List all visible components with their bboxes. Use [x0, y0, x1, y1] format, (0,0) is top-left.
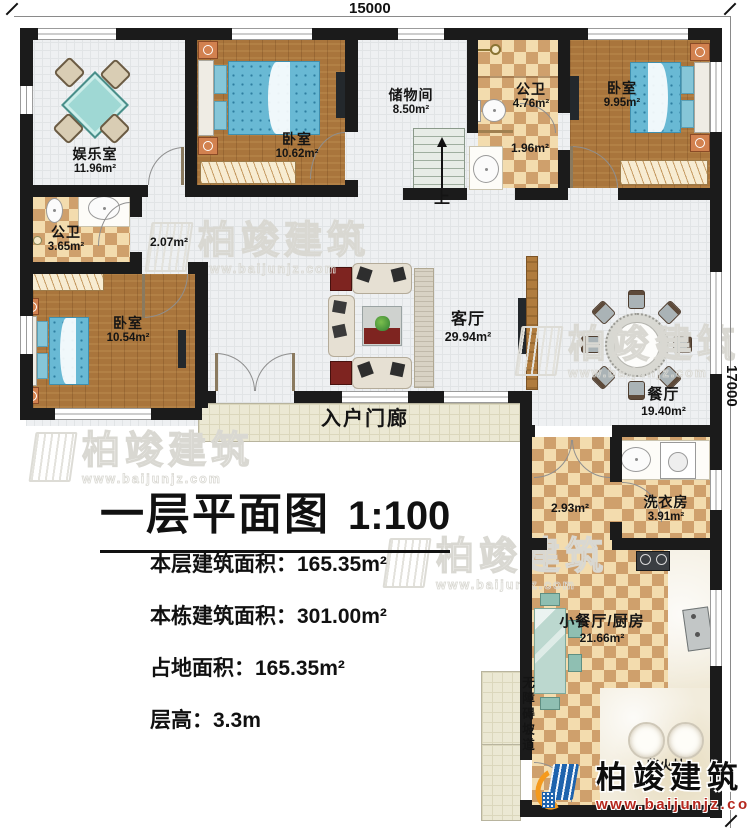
room-area: 3.91m² — [626, 511, 706, 525]
page-title: 一层平面图 — [100, 478, 330, 542]
room-area: 29.94m² — [418, 330, 518, 345]
brand-name: 柏竣建筑 — [596, 762, 750, 793]
room-name: 公卫 — [30, 224, 102, 241]
door-leaf — [570, 146, 573, 188]
wall — [195, 262, 208, 408]
wall — [345, 180, 358, 197]
room-name: 洗衣房 — [626, 494, 706, 511]
room-name: 公卫 — [492, 81, 570, 98]
bed-pillow — [214, 101, 227, 130]
room-name: 储物间 — [366, 87, 456, 104]
window — [710, 62, 722, 132]
sink — [621, 447, 651, 472]
room-label-entertainment: 娱乐室 11.96m² — [45, 146, 145, 176]
brand-url: www.baijunjz.com — [596, 796, 750, 813]
nightstand — [198, 137, 218, 155]
door-leaf — [292, 353, 295, 391]
side-table — [330, 267, 352, 291]
tv-cabinet — [526, 256, 538, 390]
window — [588, 28, 688, 40]
wall — [345, 28, 358, 132]
room-label-bedroom2: 卧室 9.95m² — [572, 80, 672, 110]
room-name: 餐厅 — [616, 386, 711, 404]
stats-block: 本层建筑面积：165.35m² 本栋建筑面积：301.00m² 占地面积：165… — [150, 548, 387, 734]
floor-plan: 15000 17000 无障碍坡道 — [0, 0, 750, 832]
title-block: 一层平面图 1:100 — [100, 478, 450, 553]
wall — [618, 188, 710, 200]
brand-logo: 柏竣建筑 www.baijunjz.com — [536, 760, 750, 814]
dimension-right-label: 17000 — [723, 365, 740, 407]
dining-chair — [628, 290, 645, 309]
stat-building-area: 本栋建筑面积：301.00m² — [150, 600, 387, 630]
room-label-laundry: 洗衣房 3.91m² — [626, 494, 706, 524]
kitchen-chair — [568, 654, 582, 672]
stove-burner — [656, 554, 667, 565]
washing-machine-door — [668, 452, 688, 472]
stat-floor-area: 本层建筑面积：165.35m² — [150, 548, 387, 578]
tv — [336, 72, 345, 118]
wall — [130, 252, 142, 262]
tv — [518, 298, 526, 354]
wall — [467, 28, 478, 133]
kitchen-chair — [540, 593, 560, 606]
wood-stove-burner — [628, 722, 665, 759]
room-label-living: 客厅 29.94m² — [418, 311, 518, 345]
dimension-line-right — [730, 16, 731, 828]
room-label-corridor: 2.07m² — [138, 235, 200, 249]
bed-blanket — [268, 62, 290, 134]
room-name: 卧室 — [78, 315, 178, 332]
dimension-tick — [725, 815, 738, 828]
wall — [612, 538, 722, 550]
window — [444, 391, 508, 403]
window — [55, 408, 151, 420]
wall — [294, 391, 342, 403]
nightstand — [690, 43, 710, 61]
door-leaf — [142, 274, 145, 318]
wall — [185, 185, 345, 197]
wardrobe — [620, 160, 708, 185]
room-area: 8.50m² — [366, 104, 456, 118]
nightstand — [690, 134, 710, 152]
bed-pillow — [214, 65, 227, 94]
dining-chair — [673, 336, 692, 353]
room-label-dining: 餐厅 19.40m² — [616, 386, 711, 418]
room-label-porch: 入户门廊 — [300, 408, 430, 432]
stat-footprint-area: 占地面积：165.35m² — [150, 652, 387, 682]
stairs-arrow-head — [437, 132, 447, 147]
door-leaf — [181, 147, 184, 185]
wall — [710, 28, 722, 818]
logo-building-base-icon — [542, 792, 555, 808]
room-label-bedroom3: 卧室 10.54m² — [78, 315, 178, 345]
window — [398, 28, 444, 40]
dimension-tick — [6, 3, 19, 16]
tv — [178, 330, 186, 368]
wardrobe — [200, 161, 296, 184]
room-label-bedroom1: 卧室 10.62m² — [247, 131, 347, 161]
room-name: 卧室 — [572, 80, 672, 97]
shower-divider — [478, 76, 558, 78]
wall — [515, 188, 568, 200]
shower-head — [490, 44, 501, 55]
stove-burner — [640, 554, 651, 565]
room-area: 3.65m² — [30, 241, 102, 255]
window — [710, 470, 722, 510]
wall — [20, 262, 142, 274]
window — [232, 28, 312, 40]
room-area: 21.66m² — [537, 631, 667, 645]
door-leaf — [215, 353, 218, 391]
room-label-bath-top: 公卫 4.76m² — [492, 81, 570, 111]
room-name: 客厅 — [418, 311, 518, 330]
brand-logo-icon — [536, 760, 588, 814]
bed-headboard — [694, 62, 710, 133]
dining-table-top — [614, 322, 660, 368]
bed-pillow — [681, 66, 694, 94]
wall — [612, 425, 722, 437]
room-label-storage: 储物间 8.50m² — [366, 87, 456, 117]
room-area: 11.96m² — [45, 163, 145, 177]
room-area: 9.95m² — [572, 97, 672, 111]
room-name: 娱乐室 — [45, 146, 145, 163]
wall — [520, 538, 547, 550]
wall — [20, 185, 148, 197]
window — [38, 28, 116, 40]
room-label-kitchen: 小餐厅/厨房 21.66m² — [537, 613, 667, 645]
window — [710, 590, 722, 666]
bed-pillow — [37, 321, 48, 347]
plant — [375, 316, 390, 331]
window — [342, 391, 408, 403]
wall — [508, 391, 532, 403]
wall — [408, 391, 444, 403]
ramp-label: 无障碍坡道 — [494, 676, 534, 776]
stairs-arrow-shaft — [441, 140, 443, 190]
kitchen-chair — [540, 697, 560, 710]
window — [20, 316, 33, 354]
dimension-top-label: 15000 — [349, 0, 391, 17]
bed-pillow — [37, 353, 48, 379]
dimension-tick — [724, 3, 737, 16]
room-area: 10.62m² — [247, 148, 347, 162]
window — [20, 86, 33, 114]
room-name: 卧室 — [247, 131, 347, 148]
stat-floor-height: 层高：3.3m — [150, 704, 387, 734]
wall — [130, 197, 142, 217]
toilet-bowl — [46, 198, 63, 223]
room-label-bath-left: 公卫 3.65m² — [30, 224, 102, 254]
wall — [520, 425, 535, 437]
window — [710, 272, 722, 374]
bed-blanket — [60, 318, 76, 384]
sink-drain — [695, 632, 700, 637]
bed-headboard — [198, 60, 214, 136]
room-area: 4.76m² — [492, 98, 570, 112]
dining-chair — [581, 336, 600, 353]
room-label-washnook: 1.96m² — [500, 141, 560, 155]
sofa-pillow — [390, 362, 405, 377]
sink — [473, 155, 499, 183]
wood-stove-burner — [667, 722, 704, 759]
wall — [185, 28, 197, 188]
room-area: 10.54m² — [78, 332, 178, 346]
watermark-logo-icon — [28, 432, 77, 482]
sofa-pillow — [332, 300, 347, 314]
room-label-hallway: 2.93m² — [535, 501, 605, 515]
wall — [610, 437, 622, 482]
stairs-up-label: 上 — [430, 190, 454, 209]
bed-pillow — [681, 100, 694, 128]
title-scale: 1:100 — [348, 494, 450, 539]
room-name: 小餐厅/厨房 — [537, 613, 667, 631]
room-area: 19.40m² — [616, 404, 711, 418]
wall — [558, 150, 570, 188]
side-table — [330, 361, 352, 385]
nightstand — [198, 41, 218, 59]
